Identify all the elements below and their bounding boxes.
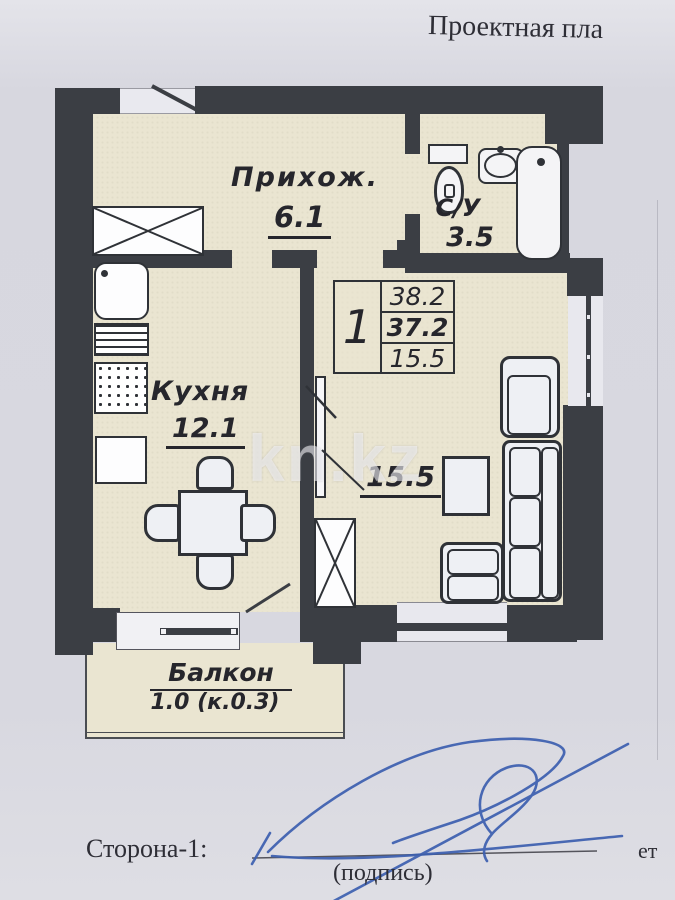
kitchen-counter — [95, 436, 147, 484]
balcony-area: 1.0 (к.0.3) — [150, 690, 280, 715]
side-label: Сторона-1: — [86, 834, 207, 864]
washbasin-bowl-icon — [484, 153, 517, 178]
wall-bottom-center — [300, 605, 397, 642]
washbasin-drain-icon — [497, 146, 504, 153]
chair-left — [144, 504, 180, 542]
balcony-label: Балкон — [150, 658, 292, 691]
chair-right — [240, 504, 276, 542]
paper-fold-line — [657, 200, 658, 760]
scanned-floor-plan-page: { "title": "Проектная пла", "watermark":… — [0, 0, 675, 900]
toilet-tank-icon — [428, 144, 468, 164]
right-window-dot-2 — [587, 355, 590, 359]
hallway-label: Прихож. — [220, 162, 390, 193]
reduced-area-value: 37.2 — [382, 311, 453, 342]
chair-top — [196, 456, 234, 490]
signature-caption: (подпись) — [333, 860, 433, 887]
pen-signature — [252, 739, 628, 900]
right-window-dot-3 — [587, 393, 590, 397]
wall-top-main — [195, 86, 565, 114]
coffee-table — [442, 456, 490, 516]
apartment-number: 1 — [335, 282, 382, 372]
sofa-corner-icon — [440, 542, 504, 604]
wall-hall-kitchen-b — [272, 250, 317, 268]
kitchen-label: Кухня — [130, 376, 270, 407]
apartment-info-table: 1 38.2 37.2 15.5 — [333, 280, 455, 374]
watermark: kn.kz — [248, 420, 423, 496]
signature-line — [252, 851, 597, 858]
kitchen-window-dot-left — [161, 629, 166, 634]
sofa-main-icon — [502, 440, 562, 602]
wall-top-right-corner — [545, 86, 603, 144]
bathroom-area: 3.5 — [420, 222, 520, 253]
page-title: Проектная пла — [428, 10, 604, 46]
armchair-icon — [500, 356, 560, 438]
hallway-wardrobe — [92, 206, 204, 256]
living-window-band — [397, 602, 507, 642]
chair-bottom — [196, 554, 234, 590]
living-window-bar — [397, 623, 507, 631]
balcony-glazing-line — [87, 732, 343, 733]
right-window-dot-1 — [587, 315, 590, 319]
living-area-value: 15.5 — [382, 342, 453, 373]
wall-bottom-center-foot — [313, 642, 361, 664]
bathtub-drain-icon — [537, 158, 545, 166]
wall-left — [55, 88, 93, 655]
wall-right-upper-block — [567, 258, 603, 296]
entry-opening — [120, 88, 197, 114]
wall-bottom-right — [507, 605, 577, 642]
right-edge-partial-text: ет — [638, 838, 657, 864]
kitchen-area: 12.1 — [166, 413, 245, 449]
kitchen-window-bar — [160, 628, 238, 635]
kitchen-window-dot-right — [231, 629, 236, 634]
kitchen-table — [178, 490, 248, 556]
bathroom-label: С/У — [408, 194, 508, 222]
kitchen-radiator-icon — [94, 323, 149, 356]
kitchen-faucet-icon — [101, 270, 108, 277]
hallway-area: 6.1 — [268, 200, 331, 239]
right-window-bar — [586, 296, 591, 406]
living-wardrobe — [314, 518, 356, 608]
total-area-value: 38.2 — [382, 282, 453, 311]
wall-stub-notch — [397, 240, 410, 254]
wall-bath-divider-upper — [405, 114, 420, 154]
